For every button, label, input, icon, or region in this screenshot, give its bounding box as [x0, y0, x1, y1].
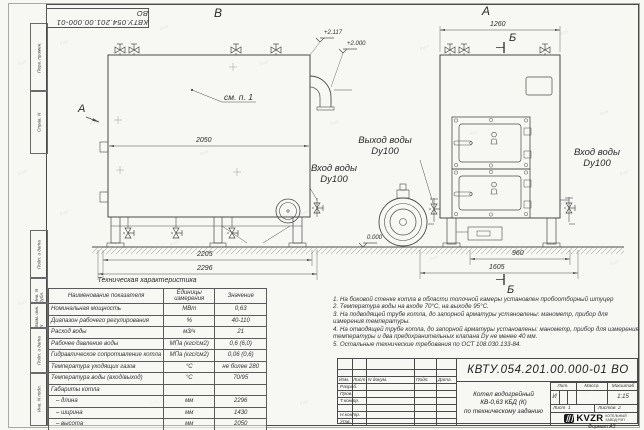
frame-box-label: Подп. и дата [31, 328, 47, 373]
frame-box-4: Взам. инв. N [30, 302, 48, 329]
tech-table-row: – длинамм2296 [49, 396, 267, 408]
kvzr-logo-text: KVZR [576, 413, 603, 424]
technical-notes: 1. На боковой стенке котла в области топ… [333, 296, 639, 348]
tech-table-row: Рабочее давление водыМПа (кгс/см2)0,6 (6… [49, 338, 267, 350]
section-label-b-top: Б [509, 32, 516, 44]
tech-table-row: Температура уходящих газов°Сне более 280 [49, 361, 267, 373]
sheets-value: 2 [618, 406, 621, 411]
kvzr-logo-icon [564, 414, 574, 423]
frame-box-1: Справ. N [30, 90, 48, 154]
section-arrow-a [86, 117, 99, 122]
view-label-b: В [214, 6, 222, 20]
note-line: 5. Остальные технические требования по О… [333, 341, 639, 348]
ground-line [92, 247, 624, 254]
format-note: Формат А3 [588, 424, 615, 430]
dimension-lines [98, 26, 578, 280]
title-block-name: Котел водогрейный КВ-0,63 КБД (К) по тех… [456, 382, 550, 425]
tech-table-row: Температура воды (вход/выход)°С70/95 [49, 373, 267, 385]
frame-box-0: Перв. примен. [30, 23, 48, 92]
rev-header-2: N докум. [368, 378, 387, 383]
scale-header: Масштаб [607, 384, 639, 389]
tech-table-row: Габариты котла [49, 384, 267, 396]
left-view-top-valves [115, 44, 281, 55]
top-left-doc-stamp: КВТУ.054.201.00.000-01 ВО [46, 8, 149, 28]
sig-row-4: Н.контр. [340, 413, 360, 418]
dim-2205: 2205 [197, 251, 213, 258]
frame-box-3: Инв. N дубл. [30, 277, 48, 304]
drawing-sheet: kvzrkvzrkvzrkvzrkvzrkvzrkvzrkvzrkvzrkvzr… [0, 0, 644, 430]
inlet-pipe-valve [560, 197, 575, 224]
burner [379, 184, 427, 246]
dim-2050: 2050 [196, 137, 212, 144]
note-line: 3. На подводящей трубе котла, до запорно… [333, 311, 639, 326]
dim-960: 960 [512, 250, 524, 257]
dim-1605: 1605 [489, 264, 505, 271]
frame-box-label: Справ. N [31, 91, 47, 153]
scale-value: 1:15 [607, 394, 639, 400]
tech-col-name: Наименование показателя [49, 289, 164, 304]
elevation-2117: +2.117 [324, 30, 342, 36]
tech-table-row: Гидравлическое сопротивление котлаМПа (к… [49, 350, 267, 362]
tech-col-units: Единицы измерения [164, 289, 215, 304]
note-line: 2. Температура воды на входе 70°С, на вы… [333, 303, 639, 310]
dim-1260: 1260 [490, 21, 506, 28]
sig-row-5: Утв. [340, 420, 351, 425]
tech-table-row: – ширинамм1430 [49, 407, 267, 419]
rev-header-3: Подп. [416, 378, 429, 383]
section-label-b-bottom: Б [507, 284, 514, 296]
frame-box-label: Инв. N подл. [31, 373, 47, 425]
sheet-label: Лист [553, 406, 565, 411]
right-view-top-valves [445, 44, 550, 55]
sheets-label: Листов [598, 406, 615, 411]
note-line: 4. На отводящей трубе котла, до запорной… [333, 326, 639, 341]
elevation-2000: +2.000 [347, 41, 366, 47]
note-line: 1. На боковой стенке котла в области топ… [333, 296, 639, 303]
sig-row-0: Разраб. [340, 385, 357, 390]
rev-header-1: Лист [353, 378, 365, 383]
tech-table: Наименование показателя Единицы измерени… [48, 288, 267, 430]
frame-box-label: Инв. N дубл. [31, 278, 47, 303]
frame-box-5: Подп. и дата [30, 327, 48, 374]
right-view-boiler-body [440, 55, 560, 247]
frame-box-label: Перв. примен. [31, 24, 47, 91]
sig-row-2: Т.контр. [340, 399, 359, 404]
logo-caption-2: ЗАВОД РЭП [605, 419, 626, 423]
title-block-doc-number: КВТУ.054.201.00.000-01 ВО [456, 359, 639, 382]
frame-box-label: Взам. инв. N [31, 303, 47, 328]
section-label-a: А [78, 103, 85, 115]
lit-header: Лит. [550, 384, 576, 389]
left-view-boiler-body [100, 55, 352, 247]
rev-header-0: Изм. [339, 378, 349, 383]
tech-table-row: Номинальная мощностьМВт0,63 [49, 304, 267, 316]
sheet-value: 1 [568, 406, 571, 411]
frame-box-label: Подп. и дата [31, 231, 47, 278]
rev-header-4: Дата [438, 378, 451, 383]
view-label-a: А [482, 4, 490, 18]
tech-table-title: Техническая характеристика [48, 277, 246, 284]
tech-table-row: – высотамм2050 [49, 419, 267, 430]
right-view-door-bolts [454, 118, 527, 216]
mass-header: Масса [576, 384, 607, 389]
label-water-outlet: Выход воды Dy100 [348, 136, 422, 158]
dim-2296: 2296 [197, 265, 213, 272]
title-block-signature-grid: Изм.ЛистN докум.Подп.ДатаРазраб.Пров.Т.к… [338, 359, 456, 425]
frame-box-6: Инв. N подл. [30, 372, 48, 426]
label-water-inlet-right: Вход воды Dy100 [560, 148, 634, 170]
label-water-inlet-left: Вход воды Dy100 [300, 164, 368, 186]
left-view-centermarks [114, 63, 241, 176]
frame-box-2: Подп. и дата [30, 230, 48, 279]
lit-value: И [550, 394, 559, 400]
tech-table-row: Диапазон рабочего регулирования%40-110 [49, 315, 267, 327]
tech-table-row: Расход водым3/ч21 [49, 327, 267, 339]
title-block: КВТУ.054.201.00.000-01 ВО Изм.ЛистN доку… [337, 358, 638, 424]
sig-row-1: Пров. [340, 392, 353, 397]
elevation-0000: 0.000 [367, 235, 382, 241]
top-left-doc-number: КВТУ.054.201.00.000-01 ВО [47, 9, 148, 27]
tech-col-value: Значение [215, 289, 267, 304]
see-note: см. п. 1 [224, 92, 253, 102]
